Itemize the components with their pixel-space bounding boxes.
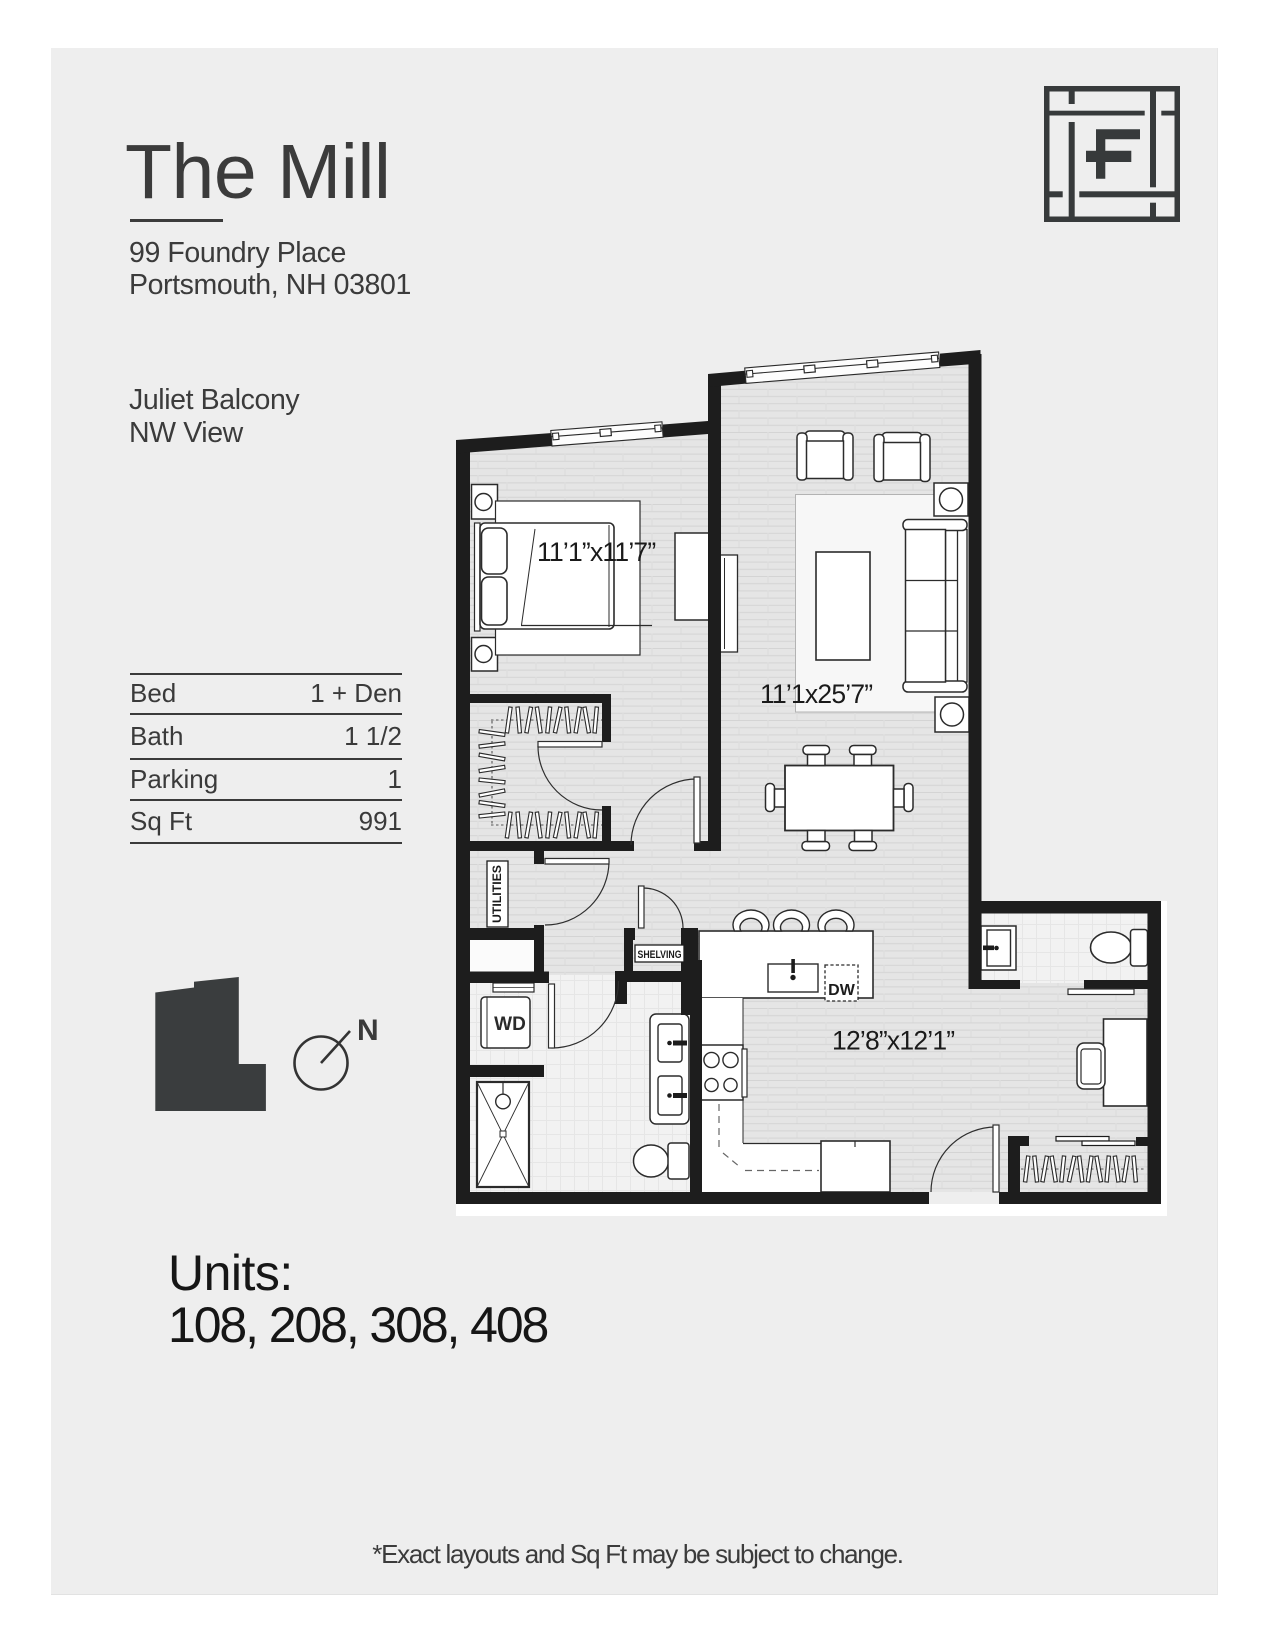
svg-text:WD: WD <box>494 1014 526 1035</box>
svg-text:N: N <box>357 1014 379 1047</box>
svg-text:11’1”x11’7”: 11’1”x11’7” <box>537 537 655 567</box>
svg-text:12’8”x12’1”: 12’8”x12’1” <box>832 1026 954 1056</box>
svg-text:SHELVING: SHELVING <box>638 949 682 961</box>
svg-text:DW: DW <box>828 982 856 999</box>
svg-text:11’1x25’7”: 11’1x25’7” <box>760 679 872 709</box>
svg-text:UTILITIES: UTILITIES <box>492 865 504 923</box>
